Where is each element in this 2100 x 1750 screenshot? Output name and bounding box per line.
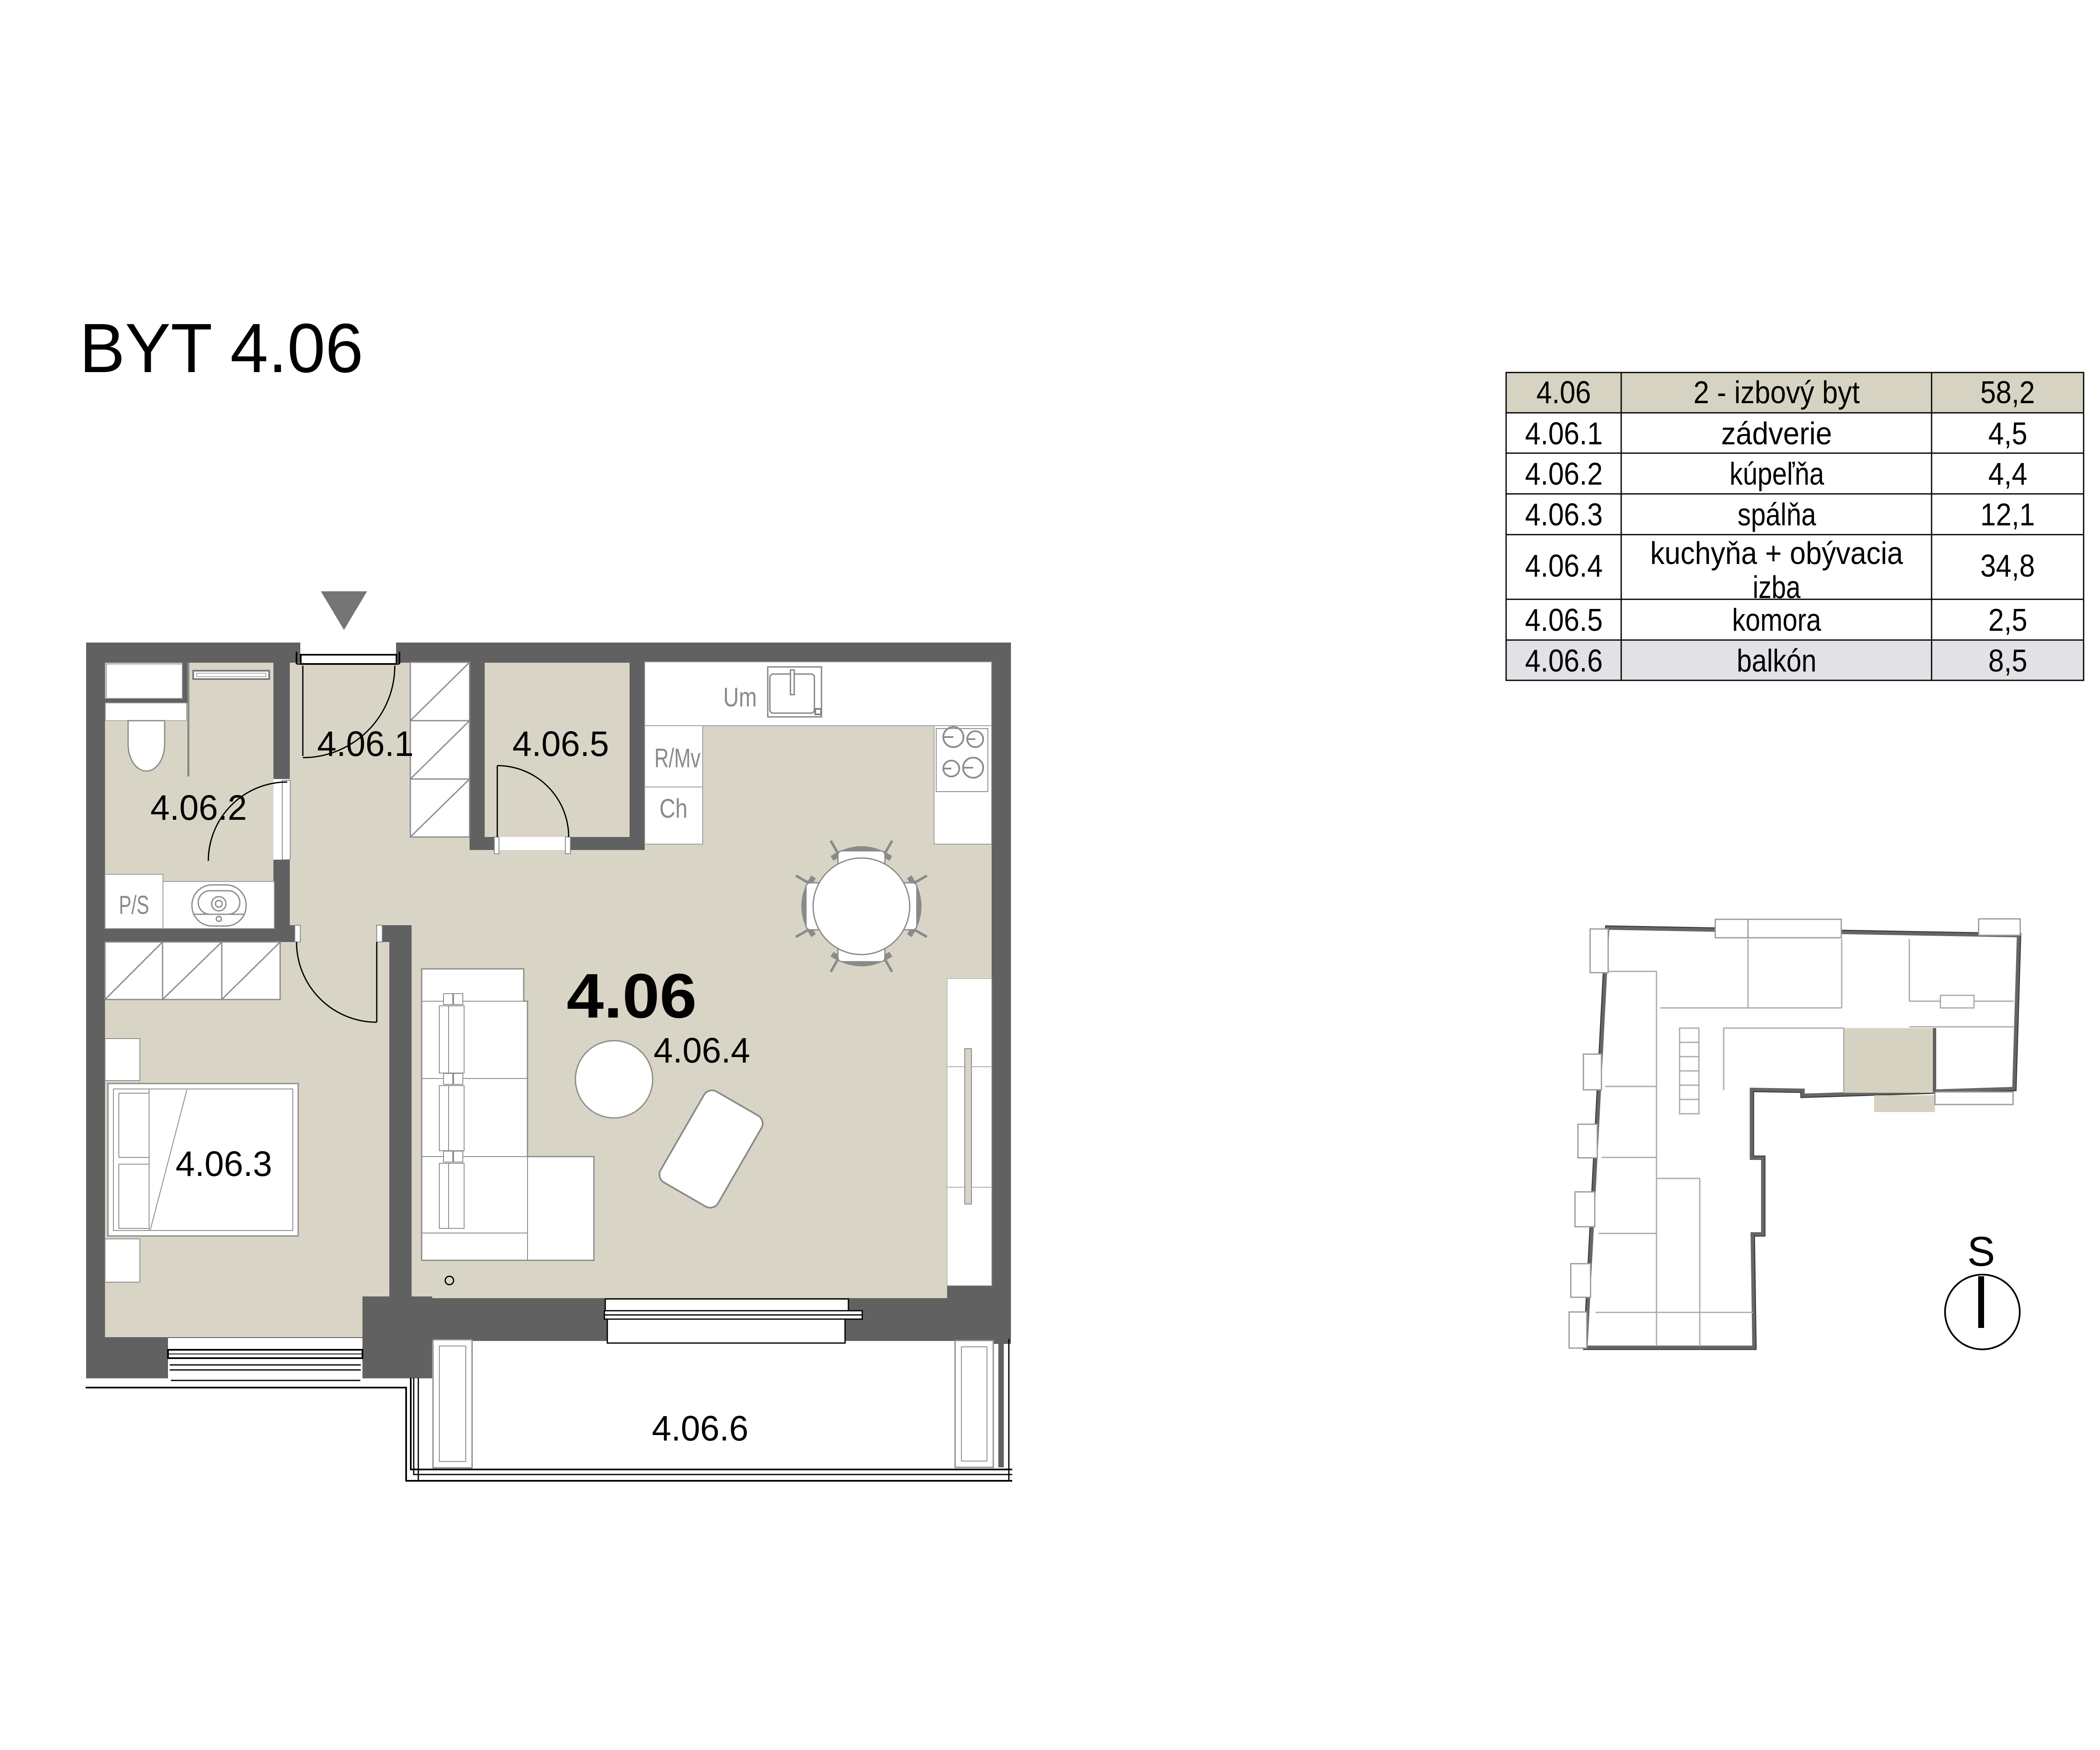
svg-text:4.06.3: 4.06.3 xyxy=(176,1144,272,1183)
svg-text:4.06.1: 4.06.1 xyxy=(317,724,414,763)
svg-text:balkón: balkón xyxy=(1737,643,1816,678)
svg-text:spálňa: spálňa xyxy=(1738,497,1816,532)
svg-text:8,5: 8,5 xyxy=(1988,643,2027,678)
svg-text:4.06.2: 4.06.2 xyxy=(1525,456,1603,491)
svg-text:zádverie: zádverie xyxy=(1721,416,1832,451)
svg-text:komora: komora xyxy=(1732,602,1821,638)
svg-text:4.06.5: 4.06.5 xyxy=(1525,602,1603,638)
svg-text:4.06.4: 4.06.4 xyxy=(1525,548,1603,583)
svg-text:2,5: 2,5 xyxy=(1988,602,2027,638)
svg-text:P/S: P/S xyxy=(119,891,149,920)
svg-text:BYT 4.06: BYT 4.06 xyxy=(79,310,363,387)
svg-text:Um: Um xyxy=(723,682,757,712)
svg-text:4.06.6: 4.06.6 xyxy=(1525,643,1603,678)
svg-text:4.06: 4.06 xyxy=(567,960,697,1031)
svg-text:4,4: 4,4 xyxy=(1988,456,2027,491)
svg-text:4.06.2: 4.06.2 xyxy=(150,788,247,827)
svg-text:R/Mv: R/Mv xyxy=(654,743,701,773)
svg-text:12,1: 12,1 xyxy=(1980,497,2035,532)
svg-text:kuchyňa + obývacia: kuchyňa + obývacia xyxy=(1650,535,1903,571)
svg-text:Ch: Ch xyxy=(659,793,688,824)
svg-text:58,2: 58,2 xyxy=(1980,375,2035,410)
svg-text:kúpeľňa: kúpeľňa xyxy=(1730,456,1824,491)
svg-text:4,5: 4,5 xyxy=(1988,416,2027,451)
svg-text:4.06: 4.06 xyxy=(1536,375,1591,410)
svg-text:izba: izba xyxy=(1753,569,1801,605)
svg-text:4.06.1: 4.06.1 xyxy=(1525,416,1603,451)
svg-text:2 - izbový byt: 2 - izbový byt xyxy=(1693,375,1860,410)
svg-text:4.06.3: 4.06.3 xyxy=(1525,497,1603,532)
svg-text:34,8: 34,8 xyxy=(1980,548,2035,583)
svg-text:4.06.4: 4.06.4 xyxy=(654,1031,750,1070)
svg-text:4.06.5: 4.06.5 xyxy=(512,724,609,763)
svg-text:S: S xyxy=(1967,1228,1995,1275)
svg-text:4.06.6: 4.06.6 xyxy=(652,1409,748,1448)
